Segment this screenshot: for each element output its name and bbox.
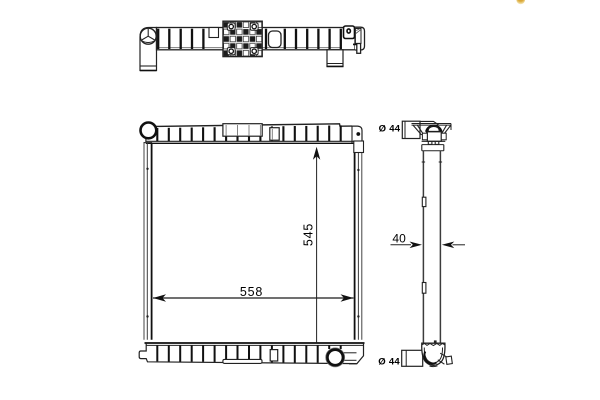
svg-text:545: 545 — [302, 223, 316, 246]
svg-text:Ø 44: Ø 44 — [379, 124, 401, 135]
svg-text:Ø 44: Ø 44 — [378, 356, 400, 367]
svg-text:558: 558 — [240, 285, 263, 299]
svg-text:40: 40 — [392, 231, 406, 245]
